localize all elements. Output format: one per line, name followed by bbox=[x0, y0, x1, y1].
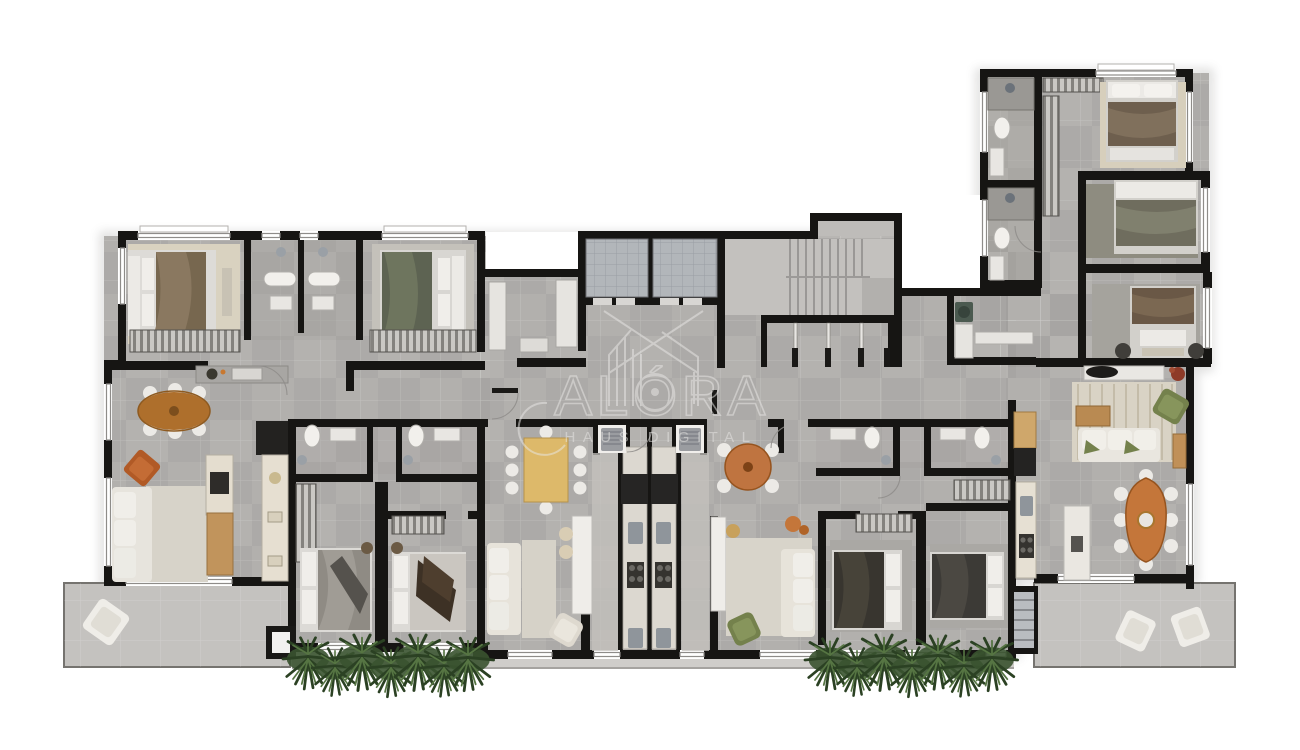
svg-text:HAUS DIGITAL: HAUS DIGITAL bbox=[564, 429, 757, 446]
svg-text:ALÓRA: ALÓRA bbox=[554, 364, 770, 428]
